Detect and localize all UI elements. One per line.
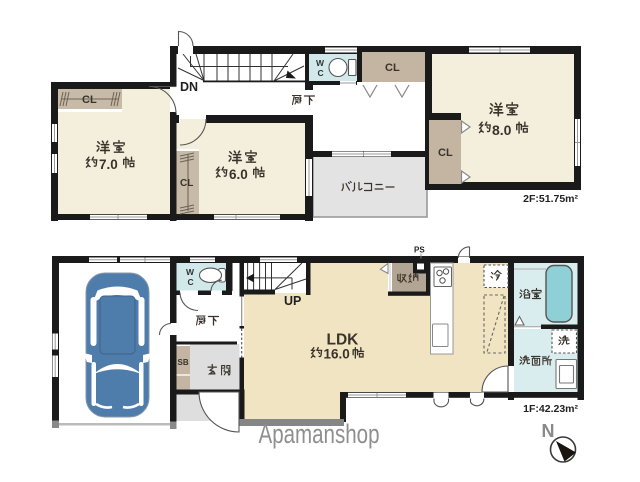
svg-text:CL: CL (438, 147, 453, 159)
svg-text:Apamanshop: Apamanshop (259, 419, 380, 449)
svg-text:W: W (316, 58, 325, 68)
svg-text:UP: UP (284, 294, 301, 308)
svg-text:6.0: 6.0 (229, 167, 248, 182)
svg-text:N: N (542, 421, 555, 441)
svg-text:W: W (186, 267, 195, 277)
svg-text:CL: CL (385, 62, 400, 74)
svg-text:1F:42.23m²: 1F:42.23m² (523, 403, 578, 415)
svg-text:PS: PS (414, 246, 425, 255)
svg-text:C: C (188, 277, 194, 287)
svg-text:CL: CL (180, 178, 193, 189)
svg-text:SB: SB (178, 358, 189, 367)
svg-text:16.0: 16.0 (324, 347, 350, 362)
svg-text:DN: DN (180, 80, 198, 94)
svg-text:2F:51.75m²: 2F:51.75m² (523, 193, 578, 205)
svg-text:7.0: 7.0 (99, 157, 118, 172)
svg-text:C: C (318, 68, 324, 78)
svg-text:CL: CL (82, 94, 97, 106)
svg-text:8.0: 8.0 (492, 122, 512, 138)
